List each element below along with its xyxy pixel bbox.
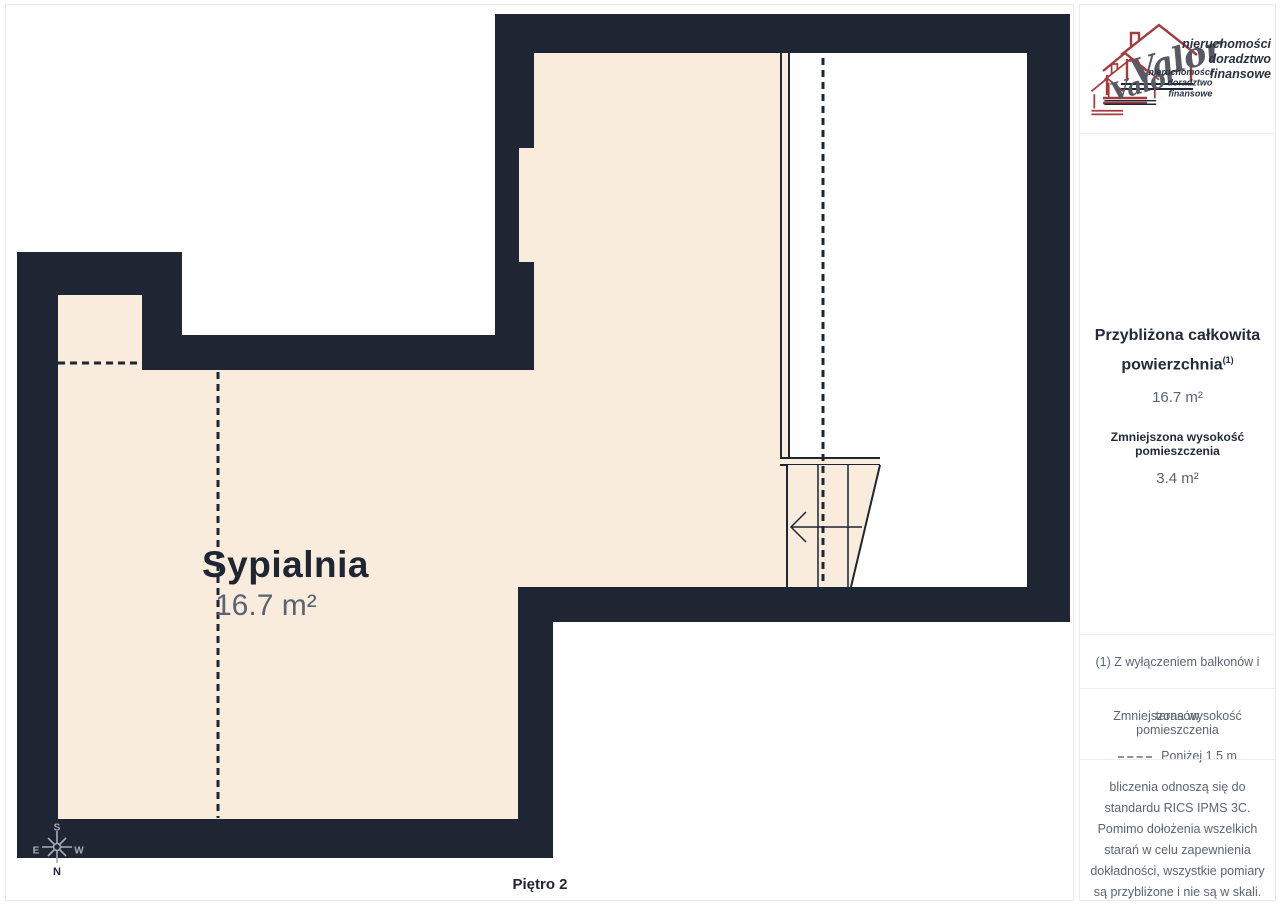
compass-west-label: W	[74, 846, 83, 857]
logo-tagline: nieruchomości doradztwo finansowe	[1148, 67, 1212, 99]
measurements-block: Przybliżona całkowita powierzchnia(1) 16…	[1080, 323, 1275, 487]
legend-section: Zmniejszona wysokość pomieszczenia Poniż…	[1080, 688, 1275, 759]
floor-level-label: Piętro 2	[464, 876, 616, 893]
wall-bottom	[17, 819, 553, 858]
stair-landing	[780, 457, 880, 466]
agency-logo-copy-2: Valor nieruchomości doradztwo finansowe	[1090, 51, 1212, 130]
floor-area	[58, 53, 790, 819]
room-area-label: 16.7 m²	[215, 589, 317, 623]
total-area-value: 16.7 m²	[1080, 389, 1275, 406]
door-recess	[519, 148, 534, 262]
floor-niche	[58, 295, 142, 370]
disclaimer-text: bliczenia odnoszą się do standardu RICS …	[1088, 777, 1267, 906]
wall-top	[495, 14, 1070, 53]
disclaimer-section: bliczenia odnoszą się do standardu RICS …	[1080, 759, 1275, 902]
footnote-marker: (1)	[1223, 355, 1234, 365]
compass-east-label: E	[33, 846, 40, 857]
room-name-label: Sypialnia	[202, 544, 369, 586]
page: Sypialnia 16.7 m² Piętro 2 S E W N Valor…	[0, 0, 1280, 906]
reduced-height-title: Zmniejszona wysokość pomieszczenia	[1080, 430, 1275, 458]
compass-north-label: N	[53, 866, 61, 878]
wall-right	[1027, 14, 1070, 622]
wall-slab	[142, 335, 534, 370]
reduced-height-value: 3.4 m²	[1080, 470, 1275, 487]
dashed-line-sample-icon	[1118, 756, 1152, 758]
compass-south-label: S	[54, 823, 61, 834]
floor-middle	[58, 370, 790, 587]
wall-room-right	[518, 587, 553, 858]
legend-title: Zmniejszona wysokość pomieszczenia	[1080, 709, 1275, 737]
info-sidebar: Valor nieruchomości doradztwo finansowe	[1079, 4, 1276, 901]
wall-left	[17, 252, 58, 858]
wall-topleft-v	[142, 252, 182, 335]
agency-logo: Valor nieruchomości doradztwo finansowe	[1080, 5, 1275, 134]
footnote-section: (1) Z wyłączeniem balkonów i tarasów	[1080, 634, 1275, 688]
wall-stair-bottom	[518, 587, 1070, 622]
total-area-title: Przybliżona całkowita powierzchnia(1)	[1080, 323, 1275, 377]
